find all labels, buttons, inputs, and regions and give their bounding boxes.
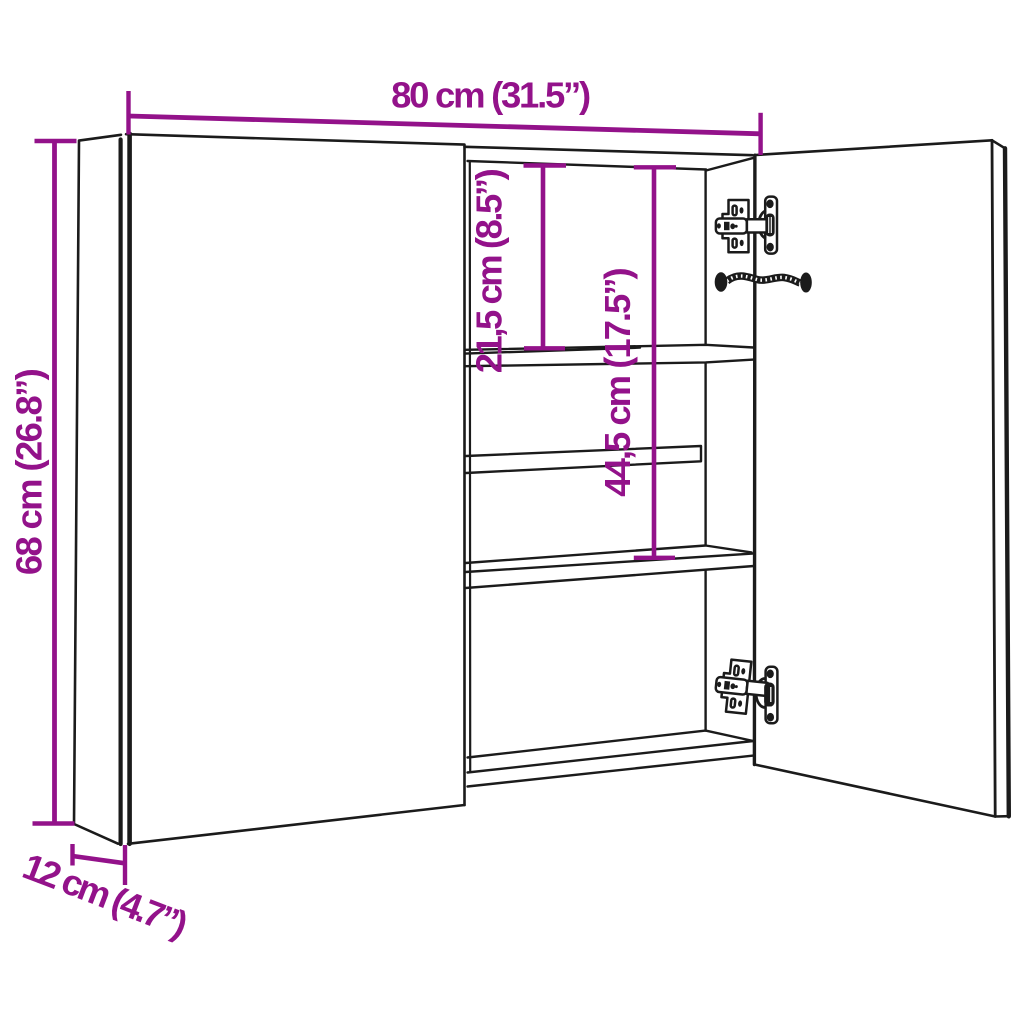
svg-text:68 cm (26.8”): 68 cm (26.8”) xyxy=(9,369,50,575)
svg-text:44,5 cm (17.5”): 44,5 cm (17.5”) xyxy=(597,268,638,496)
svg-text:21,5 cm (8.5”): 21,5 cm (8.5”) xyxy=(469,169,510,373)
svg-text:80 cm (31.5”): 80 cm (31.5”) xyxy=(391,75,590,116)
